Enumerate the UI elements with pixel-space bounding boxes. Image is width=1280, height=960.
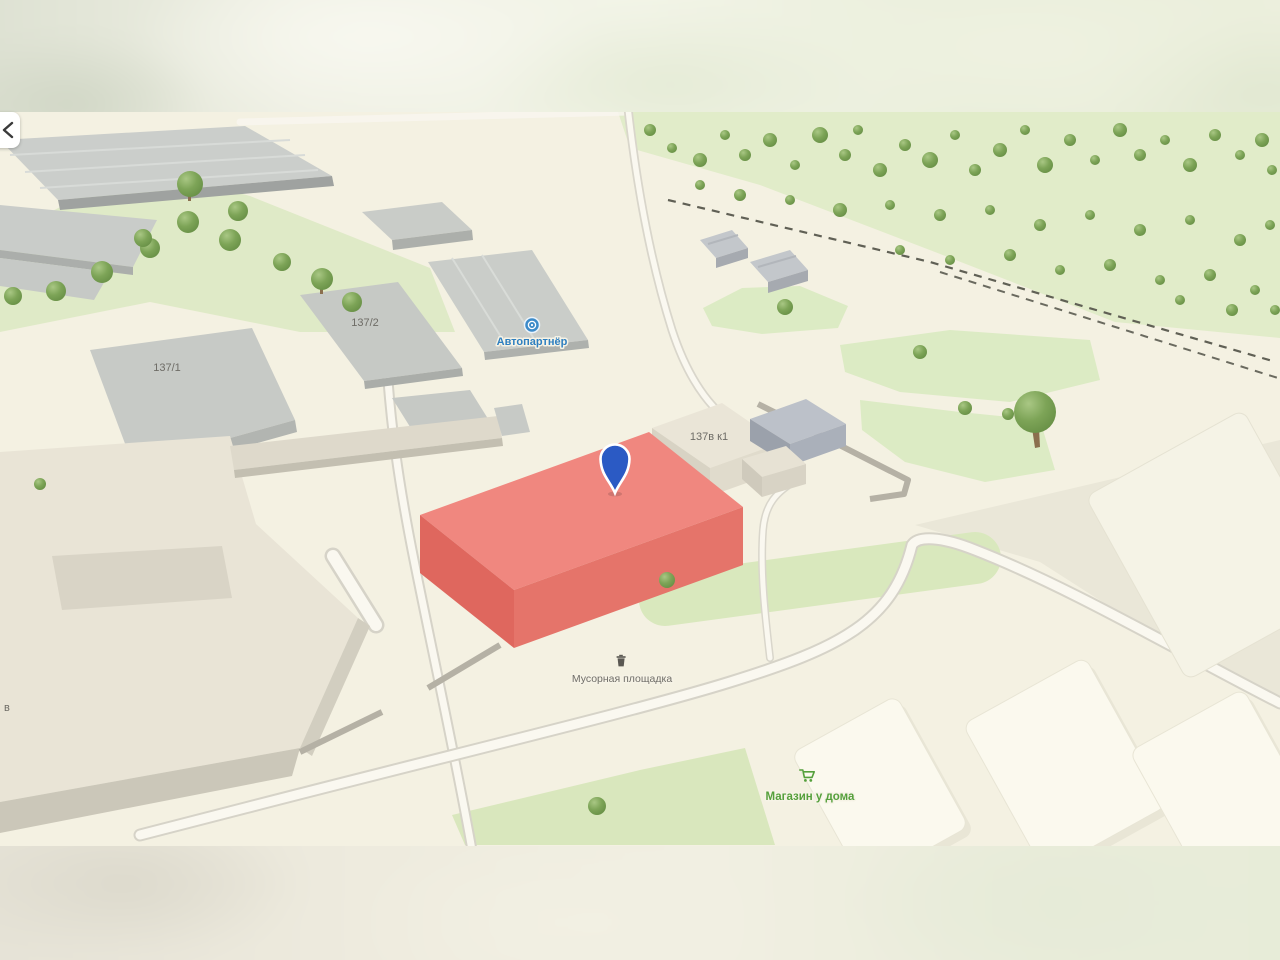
label-partial[interactable]: в xyxy=(4,702,10,714)
chevron-left-icon xyxy=(0,118,20,142)
back-button[interactable] xyxy=(0,112,20,148)
poi-trash-label[interactable]: Мусорная площадка xyxy=(572,673,672,685)
label-137-1[interactable]: 137/1 xyxy=(153,362,181,374)
top-blur-band xyxy=(0,0,1280,112)
map-canvas[interactable]: 137/1 137/2 137в к1 в Автопартнёр Мусорн… xyxy=(0,0,1280,960)
poi-shop-label[interactable]: Магазин у дома xyxy=(766,791,855,803)
bottom-blur-band xyxy=(0,846,1280,960)
map-screenshot: 137/1 137/2 137в к1 в Автопартнёр Мусорн… xyxy=(0,0,1280,960)
poi-autopartner-label[interactable]: Автопартнёр xyxy=(497,336,568,348)
label-137v-k1[interactable]: 137в к1 xyxy=(690,431,728,443)
label-137-2[interactable]: 137/2 xyxy=(351,317,379,329)
big-tree xyxy=(1014,391,1056,433)
